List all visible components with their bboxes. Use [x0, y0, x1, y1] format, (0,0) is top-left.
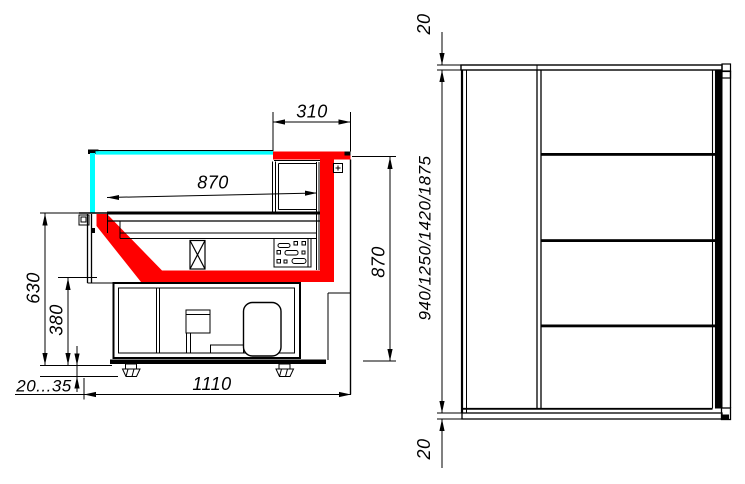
dim-630: 630	[24, 213, 89, 366]
front-glass-edge	[716, 70, 723, 409]
dim-870-height-label: 870	[369, 246, 389, 278]
machine-compartment	[114, 283, 301, 358]
canopy-glass	[96, 151, 274, 154]
dim-feet-adjust-label: 20...35	[15, 377, 72, 396]
dim-heights: 940/1250/1420/1875	[416, 70, 445, 413]
dim-310-label: 310	[296, 102, 328, 122]
foot-left	[123, 364, 141, 377]
elevation-view	[461, 64, 731, 420]
dim-bottom-20-label: 20	[414, 438, 434, 460]
countertop-end-cap	[722, 64, 731, 71]
shelf-3	[542, 325, 717, 328]
dim-top-20: 20	[414, 13, 461, 82]
drawing-canvas: 310 870 870 630 380	[0, 0, 745, 484]
base-strip	[462, 413, 722, 419]
elevation-dimensions: 20 940/1250/1420/1875 20	[414, 13, 462, 468]
support-brace	[190, 241, 205, 270]
dim-870-depth-label: 870	[197, 173, 229, 193]
dim-bottom-20: 20	[414, 413, 462, 468]
dim-870-depth: 870	[107, 173, 317, 201]
rear-top-edge	[345, 152, 351, 156]
screw-detail	[334, 164, 343, 173]
front-glass	[90, 153, 95, 213]
canopy-edge-line	[96, 150, 274, 151]
technical-drawing: 310 870 870 630 380	[0, 0, 745, 484]
shelf-2	[542, 239, 717, 242]
insulated-body-highlight	[97, 152, 351, 283]
dim-380-label: 380	[47, 304, 67, 336]
dim-380: 380	[47, 278, 98, 366]
countertop	[461, 65, 722, 70]
electric-box	[186, 310, 210, 333]
shelves	[542, 153, 717, 327]
shelf-1	[542, 153, 717, 156]
dim-310: 310	[273, 102, 351, 152]
dim-630-label: 630	[24, 272, 44, 304]
dim-heights-label: 940/1250/1420/1875	[416, 155, 435, 320]
dim-870-height: 870	[352, 157, 396, 362]
foot-right	[276, 364, 294, 377]
dim-top-20-label: 20	[414, 13, 434, 35]
display-deck	[108, 212, 321, 239]
vent-louver-panel	[274, 239, 311, 268]
base-plate	[211, 345, 244, 353]
dim-1110-label: 1110	[192, 374, 231, 394]
compressor	[244, 303, 282, 357]
